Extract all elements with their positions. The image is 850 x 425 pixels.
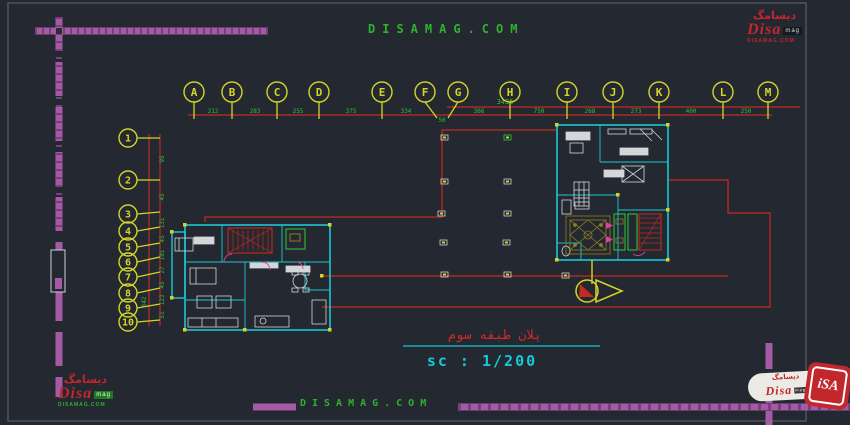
svg-text:268: 268 (585, 108, 596, 115)
watermark-bottom: DISAMAG.COM (300, 398, 432, 409)
right-plan-carpet (566, 216, 610, 254)
left-floor-plan (170, 223, 332, 332)
column-dimension-labels: 212 283 255 375 334 50 366 750 268 273 4… (208, 108, 752, 124)
left-plan-green-room (286, 229, 305, 249)
svg-text:1: 1 (125, 134, 131, 145)
title-block: پلان طبقه سوم sc : 1/200 (403, 328, 600, 370)
svg-text:8: 8 (125, 289, 131, 300)
logo-name: Disa (747, 21, 781, 38)
svg-text:C: C (274, 86, 281, 99)
svg-text:95: 95 (159, 155, 166, 163)
grid-bubble-2: 2 (119, 171, 137, 189)
svg-text:F: F (422, 86, 429, 99)
svg-text:I: I (564, 86, 571, 99)
column-grid-bubbles: A B C D E F G H I J K L M (184, 82, 778, 102)
logo-name: Disa (58, 385, 92, 402)
logo-site-url: DISAMAG.COM (58, 403, 113, 408)
svg-text:334: 334 (401, 108, 412, 115)
grid-bubble-I: I (557, 82, 577, 102)
right-floor-plan (555, 123, 670, 262)
svg-text:750: 750 (534, 108, 545, 115)
grid-bubble-M: M (758, 82, 778, 102)
grid-bubble-L: L (713, 82, 733, 102)
svg-text:5: 5 (125, 243, 131, 254)
svg-text:51: 51 (159, 311, 166, 319)
svg-text:123: 123 (159, 294, 166, 305)
right-plan-junctions (555, 123, 670, 262)
svg-text:45: 45 (159, 281, 166, 289)
floor-plan-drawing: 3435 A B C D E F G H I J K L M 212 283 2… (0, 0, 850, 425)
svg-text:6: 6 (125, 258, 131, 269)
grid-bubble-J: J (603, 82, 623, 102)
border-marker-slot (51, 250, 65, 292)
row-grid-bubbles: 1 2 3 4 5 6 7 8 9 10 (119, 129, 137, 331)
svg-text:131: 131 (159, 217, 166, 228)
left-plan-furniture (175, 237, 326, 327)
svg-text:250: 250 (741, 108, 752, 115)
grid-bubble-G: G (448, 82, 468, 102)
svg-text:283: 283 (250, 108, 261, 115)
svg-text:B: B (229, 86, 236, 99)
svg-text:7: 7 (125, 273, 131, 284)
svg-text:G: G (455, 86, 462, 99)
svg-text:366: 366 (474, 108, 485, 115)
svg-text:101: 101 (159, 249, 166, 260)
grid-bubble-D: D (309, 82, 329, 102)
svg-text:400: 400 (686, 108, 697, 115)
grid-bubble-3: 3 (119, 205, 137, 223)
section-arrow-symbol (576, 260, 622, 302)
svg-text:2: 2 (125, 176, 131, 187)
site-boundary-lines (205, 130, 770, 307)
disamag-logo-bottom-left: دیسامگ Disamag DISAMAG.COM (58, 374, 113, 408)
svg-text:4: 4 (125, 227, 131, 238)
disamag-logo-top-right: دیسامگ Disamag DISAMAG.COM (747, 10, 802, 44)
svg-text:255: 255 (293, 108, 304, 115)
logo-farsi-text: دیسامگ (747, 10, 802, 21)
grid-bubble-C: C (267, 82, 287, 102)
svg-text:3: 3 (125, 210, 131, 221)
svg-text:A: A (191, 86, 198, 99)
right-plan-doors (606, 222, 613, 243)
logo-site-url: DISAMAG.COM (747, 39, 802, 44)
svg-text:273: 273 (631, 108, 642, 115)
grid-bubble-E: E (372, 82, 392, 102)
logo-suffix: mag (94, 391, 113, 399)
svg-text:M: M (765, 86, 772, 99)
svg-text:J: J (610, 86, 617, 99)
svg-text:27: 27 (159, 266, 166, 274)
isa-house-icon: iSA (803, 361, 850, 411)
column-markers (438, 135, 569, 278)
grid-bubble-F: F (415, 82, 435, 102)
logo-farsi-text: دیسامگ (58, 374, 113, 385)
cad-canvas: 3435 A B C D E F G H I J K L M 212 283 2… (0, 0, 850, 425)
grid-bubble-10: 10 (119, 313, 137, 331)
grid-bubble-A: A (184, 82, 204, 102)
svg-text:D: D (316, 86, 323, 99)
svg-text:10: 10 (122, 318, 134, 329)
logo-name: Disa (765, 383, 792, 398)
scale-label: sc : 1/200 (427, 352, 537, 370)
watermark-top: DISAMAG.COM (368, 22, 524, 36)
svg-text:K: K (656, 86, 663, 99)
svg-text:H: H (507, 86, 514, 99)
left-plan-stairs (228, 228, 272, 253)
svg-text:50: 50 (438, 117, 446, 124)
svg-text:375: 375 (346, 108, 357, 115)
disamag-logo-bottom-right: دیسامگ Disamag iSA (748, 362, 850, 418)
svg-text:45: 45 (159, 193, 166, 201)
logo-suffix: mag (783, 27, 802, 35)
svg-text:212: 212 (208, 108, 219, 115)
svg-text:L: L (720, 86, 727, 99)
svg-text:45: 45 (159, 235, 166, 243)
grid-bubble-B: B (222, 82, 242, 102)
plan-title: پلان طبقه سوم (448, 328, 542, 343)
top-dimension-line: 3435 (188, 98, 800, 115)
right-plan-stairs (614, 214, 661, 256)
grid-bubble-1: 1 (119, 129, 137, 147)
svg-text:E: E (379, 86, 386, 99)
grid-bubble-K: K (649, 82, 669, 102)
